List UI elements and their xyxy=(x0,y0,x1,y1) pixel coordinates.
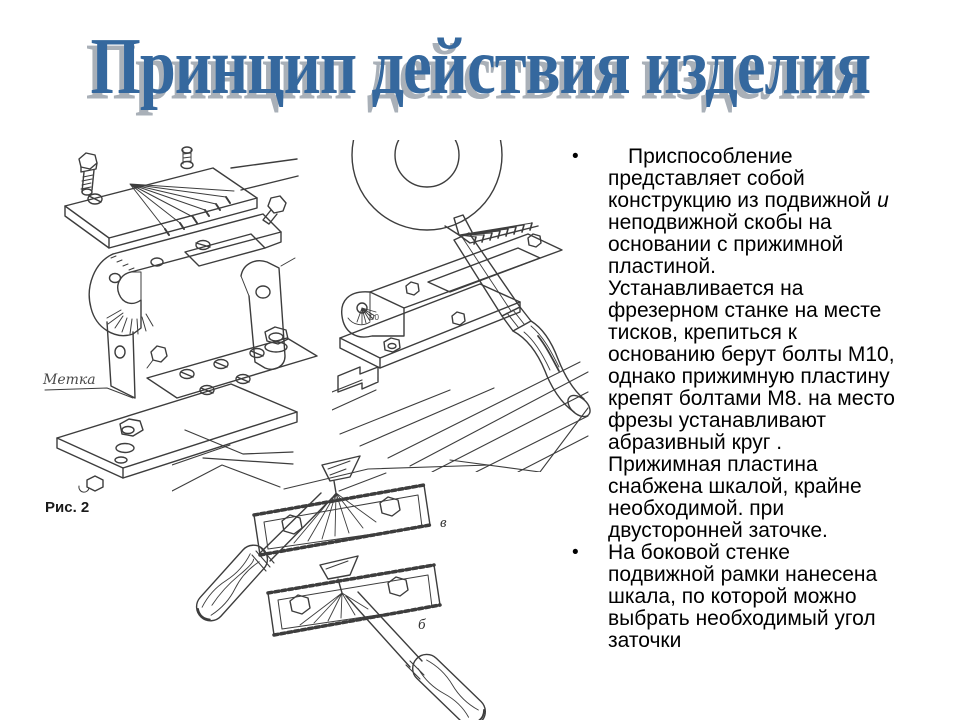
plate-b-label: б xyxy=(418,617,426,633)
bullet-item-1: • Приспособление представляет собой конс… xyxy=(570,146,922,542)
plates-drawing: в б xyxy=(172,443,502,720)
top-plate xyxy=(65,168,257,248)
slide-title: Принцип действия изделия xyxy=(90,22,870,110)
bullet-marker: • xyxy=(570,146,608,168)
bolt-m10-icon xyxy=(79,153,97,195)
plate-b xyxy=(268,556,440,635)
plate-a-label: в xyxy=(440,515,447,531)
chisel-b xyxy=(346,592,491,720)
bolt-small-icon xyxy=(181,147,193,169)
bullet-1-paragraph-2: Устанавливается на фрезерном станке на м… xyxy=(608,278,900,542)
machine-setup-drawing: 90 xyxy=(332,140,592,472)
bullet-item-2: • На боковой стенке подвижной рамки нане… xyxy=(570,542,922,652)
t-slot-foot xyxy=(338,367,378,392)
bullet-1-text: Приспособление представляет собой констр… xyxy=(608,146,900,542)
flag-a-icon xyxy=(322,456,360,493)
figure-machine-setup: 90 xyxy=(332,140,592,472)
title-area: Принцип действия изделия xyxy=(0,22,960,97)
scale-comb xyxy=(445,215,538,244)
grinding-wheel xyxy=(352,140,502,230)
bullet-1-paragraph-1: Приспособление представляет собой констр… xyxy=(608,146,900,278)
figure-plates: в б xyxy=(172,443,502,720)
bullet-marker: • xyxy=(570,542,608,564)
middle-plate xyxy=(147,338,317,398)
body-text-column: • Приспособление представляет собой конс… xyxy=(556,146,922,652)
fig2-caption: Рис. 2 xyxy=(45,499,89,516)
dial-value-label: 90 xyxy=(370,313,379,322)
metka-label: Метка xyxy=(42,372,96,388)
bullet-1-part-1: Приспособление представляет собой констр… xyxy=(608,145,877,212)
presentation-slide: Принцип действия изделия xyxy=(0,0,960,720)
machine-base-plate xyxy=(340,284,520,368)
bullet-2-text: На боковой стенке подвижной рамки нанесе… xyxy=(608,542,900,652)
bullet-list: • Приспособление представляет собой конс… xyxy=(570,146,922,652)
plate-a xyxy=(254,456,430,555)
bolt-side-icon xyxy=(263,196,286,224)
fixed-arm xyxy=(241,258,295,369)
movable-frame xyxy=(89,214,281,336)
bullet-1-part-2: неподвижной скобы на основании с прижимн… xyxy=(608,211,843,278)
bullet-1-italic-word: и xyxy=(877,189,889,212)
bullet-2-paragraph-1: На боковой стенке подвижной рамки нанесе… xyxy=(608,542,900,652)
